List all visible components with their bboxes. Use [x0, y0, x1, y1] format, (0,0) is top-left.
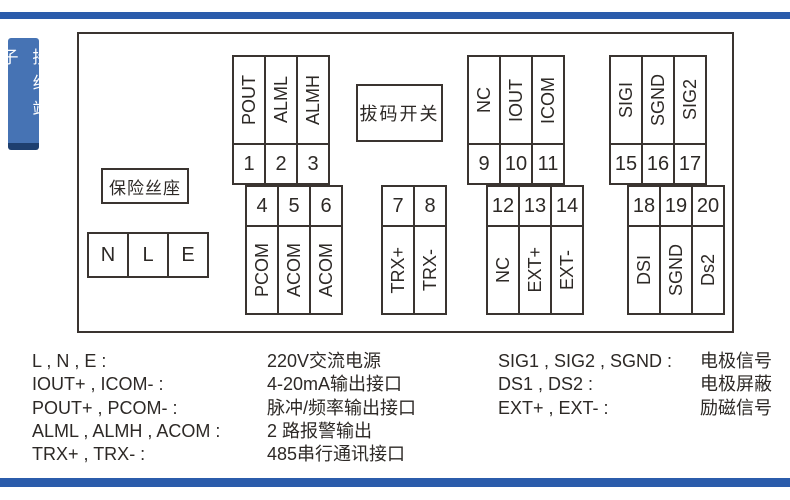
terminal-block-electrode-shield: 181920DSISGNDDs2	[627, 185, 725, 315]
terminal-label-cell: NC	[467, 55, 501, 145]
terminal-label: POUT	[239, 75, 260, 125]
terminal-label: ALML	[271, 76, 292, 123]
legend-description: 电极屏蔽	[700, 373, 772, 396]
terminal-number-row: 151617	[609, 143, 707, 185]
terminal-label-cell: ACOM	[309, 225, 343, 315]
legend-term: SIG1 , SIG2 , SGND :	[498, 350, 700, 373]
terminal-number-cell: 10	[499, 143, 533, 185]
legend-row: TRX+ , TRX- :485串行通讯接口	[32, 443, 416, 466]
terminal-label-cell: EXT+	[518, 225, 552, 315]
terminal-number: 8	[424, 195, 435, 218]
power-terminal-block: N L E	[87, 232, 209, 278]
power-terminal-e: E	[167, 232, 209, 278]
terminal-label-row: NCEXT+EXT-	[486, 225, 584, 315]
terminal-number: 6	[320, 195, 331, 218]
terminal-number-cell: 16	[641, 143, 675, 185]
power-terminal-l: L	[127, 232, 169, 278]
terminal-number: 19	[665, 195, 687, 218]
terminal-block-rs485-comm: 78TRX+TRX-	[381, 185, 447, 315]
terminal-label-cell: ALML	[264, 55, 298, 145]
legend-term: ALML , ALMH , ACOM :	[32, 420, 267, 443]
side-tab-label: 接线端子	[0, 38, 55, 143]
terminal-label: ICOM	[538, 77, 559, 124]
terminal-number: 14	[556, 195, 578, 218]
terminal-number: 12	[492, 195, 514, 218]
terminal-label: DSI	[634, 255, 655, 285]
terminal-label-cell: ICOM	[531, 55, 565, 145]
terminal-label-cell: TRX-	[413, 225, 447, 315]
terminal-number-cell: 18	[627, 185, 661, 227]
legend-description: 脉冲/频率输出接口	[267, 397, 416, 420]
terminal-number-cell: 7	[381, 185, 415, 227]
terminal-block-electrode-signal: SIGISGNDSIG2151617	[609, 55, 707, 185]
terminal-label: EXT+	[525, 247, 546, 293]
terminal-number-row: 78	[381, 185, 447, 227]
terminal-label: SIG2	[680, 79, 701, 120]
terminal-label: Ds2	[698, 254, 719, 286]
legend-description: 485串行通讯接口	[267, 443, 405, 466]
legend-description: 220V交流电源	[267, 350, 381, 373]
terminal-number-cell: 20	[691, 185, 725, 227]
terminal-number-cell: 5	[277, 185, 311, 227]
terminal-label-cell: IOUT	[499, 55, 533, 145]
terminal-label-cell: POUT	[232, 55, 266, 145]
terminal-number: 20	[697, 195, 719, 218]
terminal-label-cell: SIG2	[673, 55, 707, 145]
terminal-number: 13	[524, 195, 546, 218]
terminal-label: NC	[493, 257, 514, 283]
terminal-number: 18	[633, 195, 655, 218]
terminal-number-cell: 3	[296, 143, 330, 185]
terminal-block-excitation: 121314NCEXT+EXT-	[486, 185, 584, 315]
terminal-block-pulse-alarm-lower: 456PCOMACOMACOM	[245, 185, 343, 315]
legend-row: L , N , E :220V交流电源	[32, 350, 416, 373]
terminal-label: TRX-	[420, 249, 441, 291]
legend-term: POUT+ , PCOM- :	[32, 397, 267, 420]
terminal-number-cell: 12	[486, 185, 520, 227]
legend-term: IOUT+ , ICOM- :	[32, 373, 267, 396]
terminal-label-row: POUTALMLALMH	[232, 55, 330, 145]
terminal-number: 1	[243, 153, 254, 176]
terminal-label-cell: Ds2	[691, 225, 725, 315]
terminal-number-row: 91011	[467, 143, 565, 185]
terminal-label-cell: NC	[486, 225, 520, 315]
legend-row: POUT+ , PCOM- :脉冲/频率输出接口	[32, 397, 416, 420]
terminal-number-cell: 15	[609, 143, 643, 185]
legend-description: 电极信号	[700, 350, 772, 373]
terminal-label: ACOM	[316, 243, 337, 297]
dip-switch-box: 拔码开关	[356, 84, 443, 142]
legend-term: TRX+ , TRX- :	[32, 443, 267, 466]
terminal-number: 5	[288, 195, 299, 218]
terminal-label-row: SIGISGNDSIG2	[609, 55, 707, 145]
legend-row: ALML , ALMH , ACOM :2 路报警输出	[32, 420, 416, 443]
terminal-label: SGND	[648, 74, 669, 126]
legend-term: DS1 , DS2 :	[498, 373, 700, 396]
legend-term: L , N , E :	[32, 350, 267, 373]
terminal-number-row: 181920	[627, 185, 725, 227]
terminal-label: ACOM	[284, 243, 305, 297]
terminal-label: IOUT	[506, 79, 527, 122]
terminal-label: NC	[474, 87, 495, 113]
dip-switch-label: 拔码开关	[360, 100, 440, 126]
legend-description: 励磁信号	[700, 397, 772, 420]
power-terminal-n: N	[87, 232, 129, 278]
terminal-label: PCOM	[252, 243, 273, 297]
terminal-number-row: 121314	[486, 185, 584, 227]
legend-term: EXT+ , EXT- :	[498, 397, 700, 420]
terminal-number-cell: 14	[550, 185, 584, 227]
wiring-terminal-page: 接线端子 保险丝座 拔码开关 N L E POUTALMLALMH123456P…	[0, 0, 790, 500]
terminal-number-cell: 2	[264, 143, 298, 185]
legend-right-column: SIG1 , SIG2 , SGND :电极信号DS1 , DS2 :电极屏蔽E…	[498, 350, 772, 420]
terminal-block-pulse-alarm-upper: POUTALMLALMH123	[232, 55, 330, 185]
legend-left-column: L , N , E :220V交流电源IOUT+ , ICOM- :4-20mA…	[32, 350, 416, 466]
terminal-number: 7	[392, 195, 403, 218]
terminal-number: 11	[538, 153, 559, 176]
terminal-label: SIGI	[616, 82, 637, 118]
legend-row: DS1 , DS2 :电极屏蔽	[498, 373, 772, 396]
terminal-label: SGND	[666, 244, 687, 296]
terminal-label-cell: ACOM	[277, 225, 311, 315]
legend-description: 2 路报警输出	[267, 420, 372, 443]
terminal-number: 10	[505, 153, 527, 176]
legend-row: SIG1 , SIG2 , SGND :电极信号	[498, 350, 772, 373]
terminal-number-cell: 17	[673, 143, 707, 185]
legend-description: 4-20mA输出接口	[267, 373, 402, 396]
terminal-label-cell: SGND	[641, 55, 675, 145]
terminal-label-cell: ALMH	[296, 55, 330, 145]
terminal-number: 2	[275, 153, 286, 176]
terminal-number-cell: 11	[531, 143, 565, 185]
terminal-number: 16	[647, 153, 669, 176]
terminal-number-row: 123	[232, 143, 330, 185]
terminal-number: 17	[679, 153, 701, 176]
terminal-label-row: NCIOUTICOM	[467, 55, 565, 145]
terminal-label-row: PCOMACOMACOM	[245, 225, 343, 315]
legend-row: EXT+ , EXT- :励磁信号	[498, 397, 772, 420]
fuse-holder-box: 保险丝座	[101, 168, 189, 204]
terminal-block-current-output: NCIOUTICOM91011	[467, 55, 565, 185]
terminal-label-cell: PCOM	[245, 225, 279, 315]
terminal-number: 3	[307, 153, 318, 176]
terminal-number-cell: 6	[309, 185, 343, 227]
terminal-number-cell: 1	[232, 143, 266, 185]
terminal-number: 9	[478, 153, 489, 176]
terminal-number-cell: 9	[467, 143, 501, 185]
terminal-label: TRX+	[388, 247, 409, 294]
legend-row: IOUT+ , ICOM- :4-20mA输出接口	[32, 373, 416, 396]
terminal-label-cell: DSI	[627, 225, 661, 315]
terminal-number-cell: 8	[413, 185, 447, 227]
fuse-holder-label: 保险丝座	[109, 174, 181, 199]
terminal-label-cell: EXT-	[550, 225, 584, 315]
terminal-number-cell: 13	[518, 185, 552, 227]
terminal-number-row: 456	[245, 185, 343, 227]
terminal-number-cell: 4	[245, 185, 279, 227]
side-tab: 接线端子	[8, 38, 39, 150]
terminal-label-row: DSISGNDDs2	[627, 225, 725, 315]
terminal-label-cell: SIGI	[609, 55, 643, 145]
terminal-label: EXT-	[557, 250, 578, 290]
bottom-accent-bar	[0, 478, 790, 487]
terminal-label-cell: SGND	[659, 225, 693, 315]
terminal-label-cell: TRX+	[381, 225, 415, 315]
terminal-number: 15	[615, 153, 637, 176]
terminal-label: ALMH	[303, 75, 324, 125]
terminal-number-cell: 19	[659, 185, 693, 227]
terminal-number: 4	[256, 195, 267, 218]
terminal-label-row: TRX+TRX-	[381, 225, 447, 315]
top-accent-bar	[0, 12, 790, 19]
